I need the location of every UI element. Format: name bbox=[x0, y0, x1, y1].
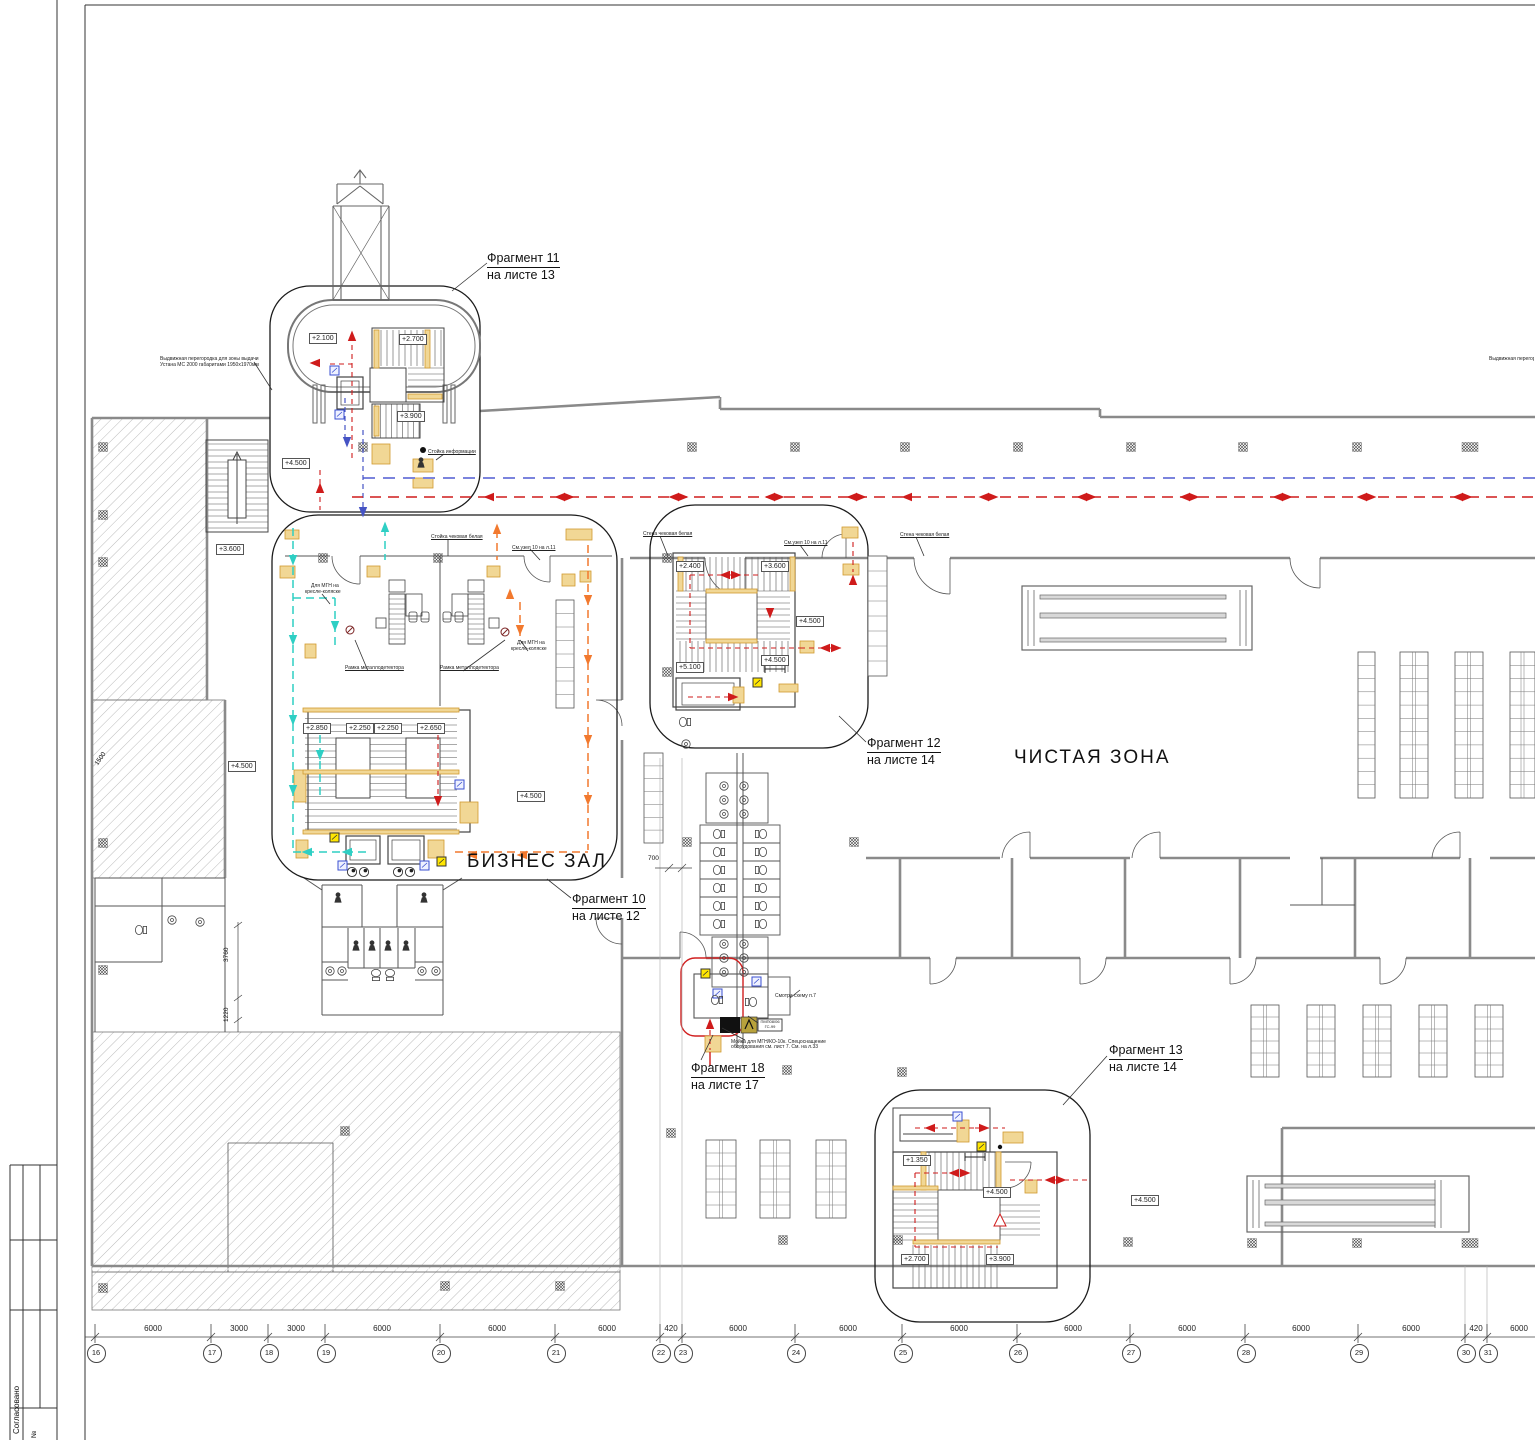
grid-span-dimension: 6000 bbox=[598, 1324, 616, 1333]
grid-span-dimension: 6000 bbox=[950, 1324, 968, 1333]
route-blue bbox=[345, 398, 1535, 512]
fragment-title: Фрагмент 13 bbox=[1109, 1043, 1183, 1060]
grid-span-dimension: 6000 bbox=[488, 1324, 506, 1333]
grid-bubble: 20 bbox=[432, 1344, 451, 1363]
dim-left-3760: 3760 bbox=[224, 948, 231, 962]
elevation-mark: +4.500 bbox=[796, 616, 824, 627]
annotation-note: Смотри схему п.7 bbox=[775, 993, 816, 999]
elevation-mark: +4.500 bbox=[983, 1187, 1011, 1198]
fragment-title: Фрагмент 10 bbox=[572, 892, 646, 909]
fragment-label-4: Фрагмент 18на листе 17 bbox=[691, 1061, 765, 1093]
fragment-sheet-ref: на листе 13 bbox=[487, 268, 560, 284]
dim-left-1220: 1220 bbox=[224, 1008, 231, 1022]
grid-bubble: 31 bbox=[1479, 1344, 1498, 1363]
floor-plan-sheet: БИЗНЕС ЗАЛ ЧИСТАЯ ЗОНА Согласовано № 150… bbox=[0, 0, 1535, 1440]
grid-bubble: 24 bbox=[787, 1344, 806, 1363]
grid-span-dimension: 6000 bbox=[1064, 1324, 1082, 1333]
grid-bubble: 23 bbox=[674, 1344, 693, 1363]
grid-bubble: 25 bbox=[894, 1344, 913, 1363]
grid-bubble: 17 bbox=[203, 1344, 222, 1363]
fragment-label-1: Фрагмент 10на листе 12 bbox=[572, 892, 646, 924]
fragment-label-2: Фрагмент 12на листе 14 bbox=[867, 736, 941, 768]
annotation-note: Устана МС 2000 габаритами 1950х1970мм bbox=[160, 362, 254, 368]
elevation-mark: +2.400 bbox=[676, 561, 704, 572]
elevation-mark: +2.700 bbox=[901, 1254, 929, 1265]
annotation-note: См.узел 10 на л.11 bbox=[512, 545, 555, 551]
annotation-note: оборудования см. лист 7. См. на л.33 bbox=[731, 1044, 818, 1050]
elevation-mark: +3.600 bbox=[216, 544, 244, 555]
grid-span-dimension: 3000 bbox=[230, 1324, 248, 1333]
fragment-title: Фрагмент 18 bbox=[691, 1061, 765, 1078]
grid-bubble: 29 bbox=[1350, 1344, 1369, 1363]
elevation-mark: +4.500 bbox=[1131, 1195, 1159, 1206]
fragment-title: Фрагмент 11 bbox=[487, 251, 560, 268]
fragment-sheet-ref: на листе 14 bbox=[867, 753, 941, 769]
elevation-mark: +2.650 bbox=[417, 723, 445, 734]
grid-span-dimension: 420 bbox=[1469, 1324, 1482, 1333]
grid-bubble: 18 bbox=[260, 1344, 279, 1363]
elevation-mark: +3.900 bbox=[986, 1254, 1014, 1265]
fragment-sheet-ref: на листе 17 bbox=[691, 1078, 765, 1094]
dim-corridor-700: 700 bbox=[648, 856, 659, 863]
grid-bubble: 21 bbox=[547, 1344, 566, 1363]
elevation-mark: +1.350 bbox=[903, 1155, 931, 1166]
fragment-title: Фрагмент 12 bbox=[867, 736, 941, 753]
fragment-label-0: Фрагмент 11на листе 13 bbox=[487, 251, 560, 283]
grid-bubble: 26 bbox=[1009, 1344, 1028, 1363]
floor-plan-canvas bbox=[0, 0, 1535, 1440]
annotation-note: См.узел 10 на л.11 bbox=[784, 540, 827, 546]
annotation-note: Рамка металлодетектора bbox=[345, 665, 404, 671]
annotation-note: кресле-коляске bbox=[511, 646, 547, 652]
elevation-mark: +2.850 bbox=[303, 723, 331, 734]
grid-bubble: 28 bbox=[1237, 1344, 1256, 1363]
elevation-mark: +2.250 bbox=[346, 723, 374, 734]
elevation-mark: +2.700 bbox=[399, 334, 427, 345]
elevation-mark: +4.500 bbox=[761, 655, 789, 666]
grid-bubble: 19 bbox=[317, 1344, 336, 1363]
zone-label-clean-zone: ЧИСТАЯ ЗОНА bbox=[1014, 748, 1171, 768]
annotation-note: ГС-99 bbox=[760, 1025, 780, 1030]
annotation-note: кресле-коляске bbox=[305, 589, 341, 595]
row-number-label: № bbox=[31, 1430, 38, 1438]
elevation-mark: +3.900 bbox=[397, 411, 425, 422]
fragment-sheet-ref: на листе 12 bbox=[572, 909, 646, 925]
grid-span-dimension: 6000 bbox=[144, 1324, 162, 1333]
elevation-mark: +4.500 bbox=[228, 761, 256, 772]
annotation-note: Рамка металлодетектора bbox=[440, 665, 499, 671]
annotation-note: Стойка информации bbox=[428, 449, 476, 455]
elevation-mark: +5.100 bbox=[676, 662, 704, 673]
grid-bubble: 16 bbox=[87, 1344, 106, 1363]
zone-label-business-hall: БИЗНЕС ЗАЛ bbox=[467, 852, 607, 872]
grid-bubble: 30 bbox=[1457, 1344, 1476, 1363]
stamp-approved: Согласовано bbox=[13, 1386, 21, 1434]
fragment-label-3: Фрагмент 13на листе 14 bbox=[1109, 1043, 1183, 1075]
shelving-racks bbox=[556, 556, 1535, 1218]
grid-bubble: 27 bbox=[1122, 1344, 1141, 1363]
annotation-note: Стена чековая белая bbox=[900, 532, 949, 538]
elevation-mark: +3.600 bbox=[761, 561, 789, 572]
elevation-mark: +2.100 bbox=[309, 333, 337, 344]
grid-span-dimension: 6000 bbox=[1510, 1324, 1528, 1333]
grid-span-dimension: 6000 bbox=[1178, 1324, 1196, 1333]
grid-span-dimension: 6000 bbox=[373, 1324, 391, 1333]
grid-span-dimension: 3000 bbox=[287, 1324, 305, 1333]
annotation-note: Стойка чековая белая bbox=[431, 534, 483, 540]
grid-span-dimension: 6000 bbox=[1402, 1324, 1420, 1333]
grid-span-dimension: 6000 bbox=[729, 1324, 747, 1333]
grid-span-dimension: 6000 bbox=[1292, 1324, 1310, 1333]
grid-span-dimension: 420 bbox=[664, 1324, 677, 1333]
fragment-sheet-ref: на листе 14 bbox=[1109, 1060, 1183, 1076]
annotation-note: Стена чековая белая bbox=[643, 531, 692, 537]
canopy-ramp bbox=[333, 170, 389, 300]
annotation-note: Выдвижная перегородка для зоны выдачи bbox=[1489, 356, 1534, 362]
elevation-mark: +4.500 bbox=[517, 791, 545, 802]
elevation-mark: +2.250 bbox=[374, 723, 402, 734]
elevation-mark: +4.500 bbox=[282, 458, 310, 469]
grid-span-dimension: 6000 bbox=[839, 1324, 857, 1333]
grid-bubble: 22 bbox=[652, 1344, 671, 1363]
